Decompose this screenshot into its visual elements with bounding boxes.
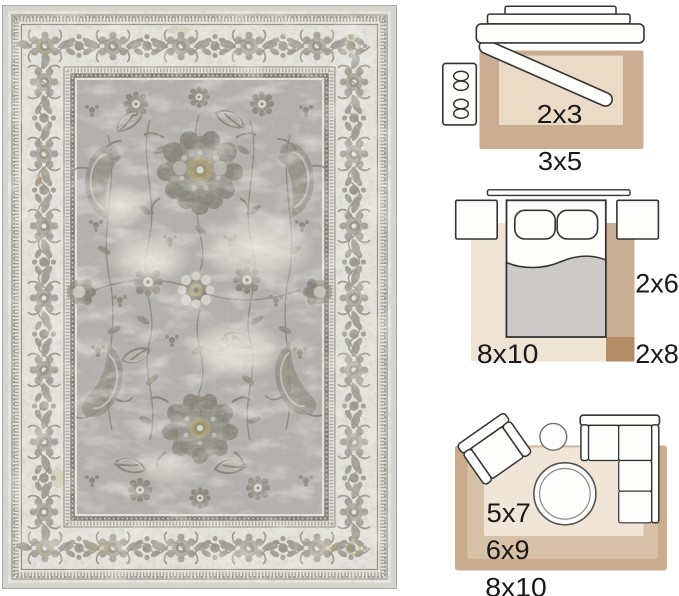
svg-text:2x6: 2x6 [635, 268, 679, 298]
svg-text:8x10: 8x10 [477, 339, 539, 369]
svg-text:8x10: 8x10 [485, 572, 547, 596]
svg-text:5x7: 5x7 [487, 498, 531, 528]
svg-text:6x9: 6x9 [486, 535, 530, 565]
svg-text:2x8: 2x8 [635, 339, 679, 369]
svg-text:2x3: 2x3 [537, 99, 583, 129]
svg-text:3x5: 3x5 [538, 146, 582, 176]
